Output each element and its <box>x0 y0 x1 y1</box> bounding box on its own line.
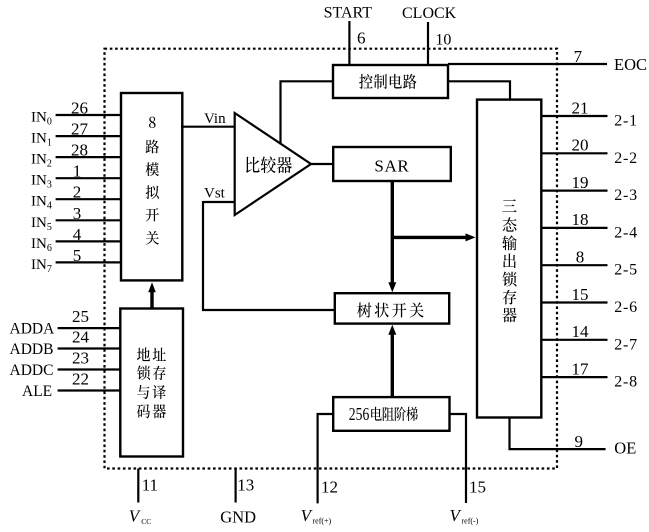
svg-text:4: 4 <box>73 225 82 244</box>
svg-text:15: 15 <box>469 478 486 497</box>
svg-text:SAR: SAR <box>374 157 409 176</box>
svg-text:2-5: 2-5 <box>614 262 638 279</box>
svg-text:8: 8 <box>576 248 585 267</box>
svg-text:25: 25 <box>72 307 89 326</box>
svg-text:Vin: Vin <box>204 111 226 127</box>
svg-text:15: 15 <box>572 285 589 304</box>
svg-text:2-6: 2-6 <box>614 299 638 316</box>
svg-text:7: 7 <box>574 47 583 66</box>
svg-text:ref(+): ref(+) <box>313 517 332 526</box>
svg-text:2-2: 2-2 <box>614 150 638 167</box>
svg-text:2: 2 <box>73 183 82 202</box>
svg-text:20: 20 <box>572 136 589 155</box>
svg-text:2-8: 2-8 <box>614 374 638 391</box>
svg-text:23: 23 <box>72 349 89 368</box>
svg-text:22: 22 <box>72 370 89 389</box>
svg-text:OE: OE <box>614 439 636 458</box>
svg-text:12: 12 <box>321 478 338 497</box>
svg-text:5: 5 <box>73 246 82 265</box>
svg-text:ALE: ALE <box>22 383 52 400</box>
svg-text:Vst: Vst <box>204 186 226 202</box>
svg-text:10: 10 <box>435 32 451 49</box>
svg-text:ADDB: ADDB <box>10 341 54 358</box>
svg-text:14: 14 <box>572 322 590 341</box>
svg-text:24: 24 <box>72 328 90 347</box>
svg-text:CLOCK: CLOCK <box>402 5 457 22</box>
svg-text:21: 21 <box>572 98 589 117</box>
svg-text:ref(-): ref(-) <box>462 517 479 526</box>
svg-text:1: 1 <box>73 162 82 181</box>
svg-text:27: 27 <box>71 120 89 139</box>
svg-text:START: START <box>324 5 373 22</box>
svg-text:9: 9 <box>574 432 583 451</box>
svg-text:256: 256 <box>349 405 370 424</box>
svg-text:13: 13 <box>237 476 254 495</box>
svg-text:EOC: EOC <box>614 55 647 74</box>
svg-text:GND: GND <box>220 508 256 527</box>
svg-text:26: 26 <box>71 99 88 118</box>
svg-text:19: 19 <box>572 173 589 192</box>
svg-text:28: 28 <box>71 141 88 160</box>
svg-text:11: 11 <box>142 476 158 495</box>
svg-text:ADDC: ADDC <box>10 362 54 379</box>
svg-text:ADDA: ADDA <box>10 321 56 338</box>
svg-text:2-7: 2-7 <box>614 336 638 353</box>
svg-text:18: 18 <box>572 210 589 229</box>
svg-text:6: 6 <box>357 29 366 48</box>
svg-text:2-4: 2-4 <box>614 224 638 241</box>
svg-text:3: 3 <box>73 204 82 223</box>
svg-text:2-1: 2-1 <box>614 113 638 130</box>
svg-text:CC: CC <box>141 517 151 526</box>
svg-text:17: 17 <box>572 359 590 378</box>
svg-text:2-3: 2-3 <box>614 187 638 204</box>
